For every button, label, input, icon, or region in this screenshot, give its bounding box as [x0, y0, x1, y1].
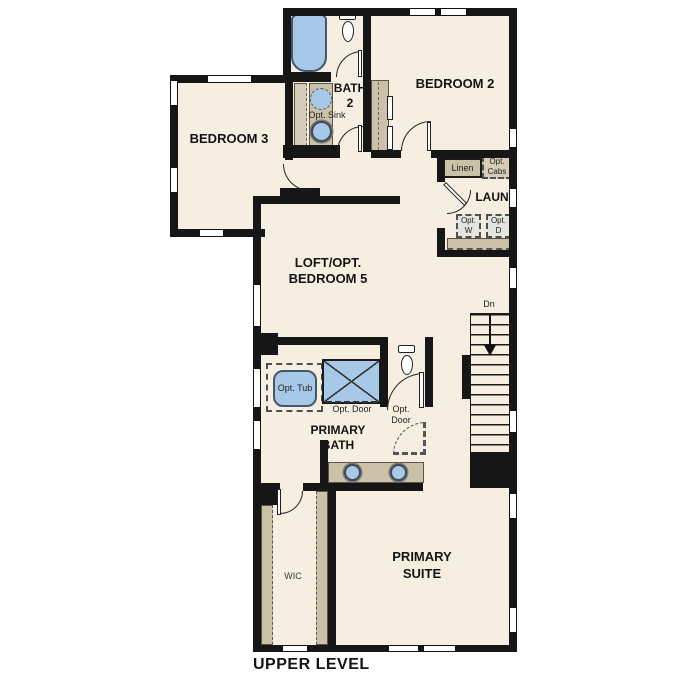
- label-bath2-line2: 2: [331, 96, 369, 110]
- wall-understairs: [470, 452, 512, 488]
- label-opt-tub: Opt. Tub: [268, 383, 322, 393]
- wall-tubroom-left: [283, 8, 291, 80]
- label-primary-bath-line2: BATH: [288, 438, 388, 452]
- wall-vanity-bottom: [322, 483, 423, 491]
- shower-opt-door-dash: [326, 399, 377, 403]
- wall-bath-top-chunk: [258, 333, 278, 355]
- label-loft-line1: LOFT/OPT.: [268, 255, 388, 270]
- window: [207, 75, 252, 83]
- label-bedroom2: BEDROOM 2: [395, 76, 515, 91]
- stairs-arrow-head: [484, 345, 496, 356]
- window: [409, 8, 436, 16]
- window: [440, 8, 467, 16]
- label-opt-door-shower: Opt. Door: [322, 404, 382, 414]
- primary-sink-1: [344, 464, 361, 481]
- label-primary-suite-line2: SUITE: [362, 566, 482, 581]
- primary-sink-2: [390, 464, 407, 481]
- wall-ptoilet-right: [425, 337, 433, 407]
- opt-second-sink-dashed: [310, 88, 332, 110]
- window: [509, 607, 517, 633]
- wall-toiletroom-right: [363, 8, 371, 80]
- label-linen: Linen: [443, 163, 482, 173]
- closet-door-slot: [387, 126, 393, 150]
- window: [170, 167, 178, 193]
- label-opt-sink: Opt. Sink: [297, 110, 357, 120]
- stairs-arrow-shaft: [489, 315, 491, 346]
- label-bath2-line1: BATH: [331, 81, 369, 95]
- door-leaf-wic: [277, 489, 281, 515]
- door-leaf-bath2: [358, 125, 362, 152]
- shower: [322, 359, 381, 404]
- window: [509, 493, 517, 519]
- window: [509, 128, 517, 148]
- label-primary-suite-line1: PRIMARY: [362, 549, 482, 564]
- floor-plan: BEDROOM 2 BEDROOM 3 BATH 2 Opt. Sink Lin…: [0, 0, 687, 687]
- wall-right: [509, 8, 517, 652]
- label-wic: WIC: [273, 571, 313, 581]
- toilet-primary-tank: [398, 345, 415, 353]
- wall-bed2-bottom-left: [371, 150, 401, 158]
- label-loft-line2: BEDROOM 5: [268, 271, 388, 286]
- door-leaf-primary-toilet: [419, 372, 424, 408]
- wall-top: [286, 8, 509, 16]
- wall-stair-stub: [462, 355, 470, 399]
- wall-bath2-bottom: [283, 145, 340, 158]
- closet-rod-line: [378, 82, 379, 150]
- label-opt-cabs-line1: Opt.: [482, 157, 512, 166]
- window: [253, 368, 261, 408]
- window: [423, 645, 456, 652]
- closet-door-slot: [387, 96, 393, 120]
- staircase: [470, 313, 512, 453]
- window: [282, 645, 308, 652]
- label-laundry: LAUN: [462, 190, 522, 204]
- wic-shelf-right: [316, 491, 328, 645]
- label-opt-d-line2: D: [486, 226, 511, 235]
- wall-loft-top: [253, 196, 400, 204]
- door-leaf-bedroom2: [427, 122, 431, 151]
- primary-vanity: [328, 462, 424, 483]
- bath2-sink: [311, 121, 332, 142]
- laundry-counter: [447, 238, 512, 250]
- window: [388, 645, 419, 652]
- wall-wic-corner-block: [258, 488, 277, 505]
- bathtub: [291, 14, 327, 72]
- window: [199, 229, 224, 237]
- window: [253, 284, 261, 327]
- door-leaf-tubroom: [358, 50, 362, 77]
- label-opt-d-line1: Opt.: [486, 216, 511, 225]
- label-opt-door-suite-line1: Opt.: [381, 404, 421, 414]
- label-opt-w-line1: Opt.: [456, 216, 481, 225]
- label-primary-bath-line1: PRIMARY: [288, 423, 388, 437]
- label-opt-cabs-line2: Cabs: [482, 167, 512, 176]
- wall-ptoilet-left: [380, 337, 388, 407]
- label-bedroom3: BEDROOM 3: [169, 131, 289, 146]
- wall-wic-top-right: [303, 483, 328, 491]
- window: [509, 410, 517, 433]
- wall-laundry-bottom: [443, 250, 517, 257]
- plan-title: UPPER LEVEL: [253, 656, 453, 674]
- window: [170, 80, 178, 106]
- window: [253, 420, 261, 450]
- wic-shelf-left: [261, 505, 273, 645]
- label-opt-w-line2: W: [456, 226, 481, 235]
- window: [509, 267, 517, 289]
- label-down: Dn: [475, 299, 503, 309]
- wall-wic-divider: [328, 488, 336, 649]
